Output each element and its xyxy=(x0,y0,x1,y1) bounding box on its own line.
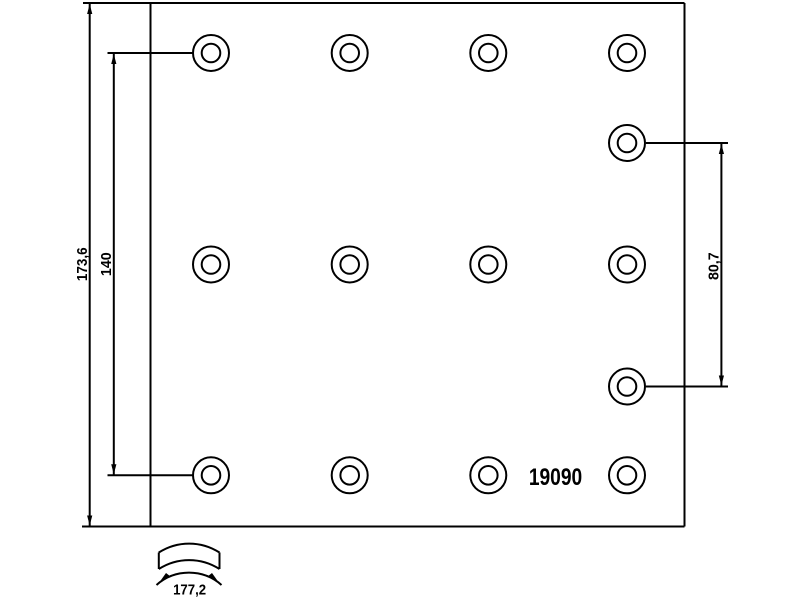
svg-text:177,2: 177,2 xyxy=(173,580,206,597)
svg-text:80,7: 80,7 xyxy=(706,252,722,280)
svg-text:19090: 19090 xyxy=(529,463,582,491)
svg-text:140: 140 xyxy=(99,252,115,276)
svg-text:173,6: 173,6 xyxy=(74,247,91,281)
